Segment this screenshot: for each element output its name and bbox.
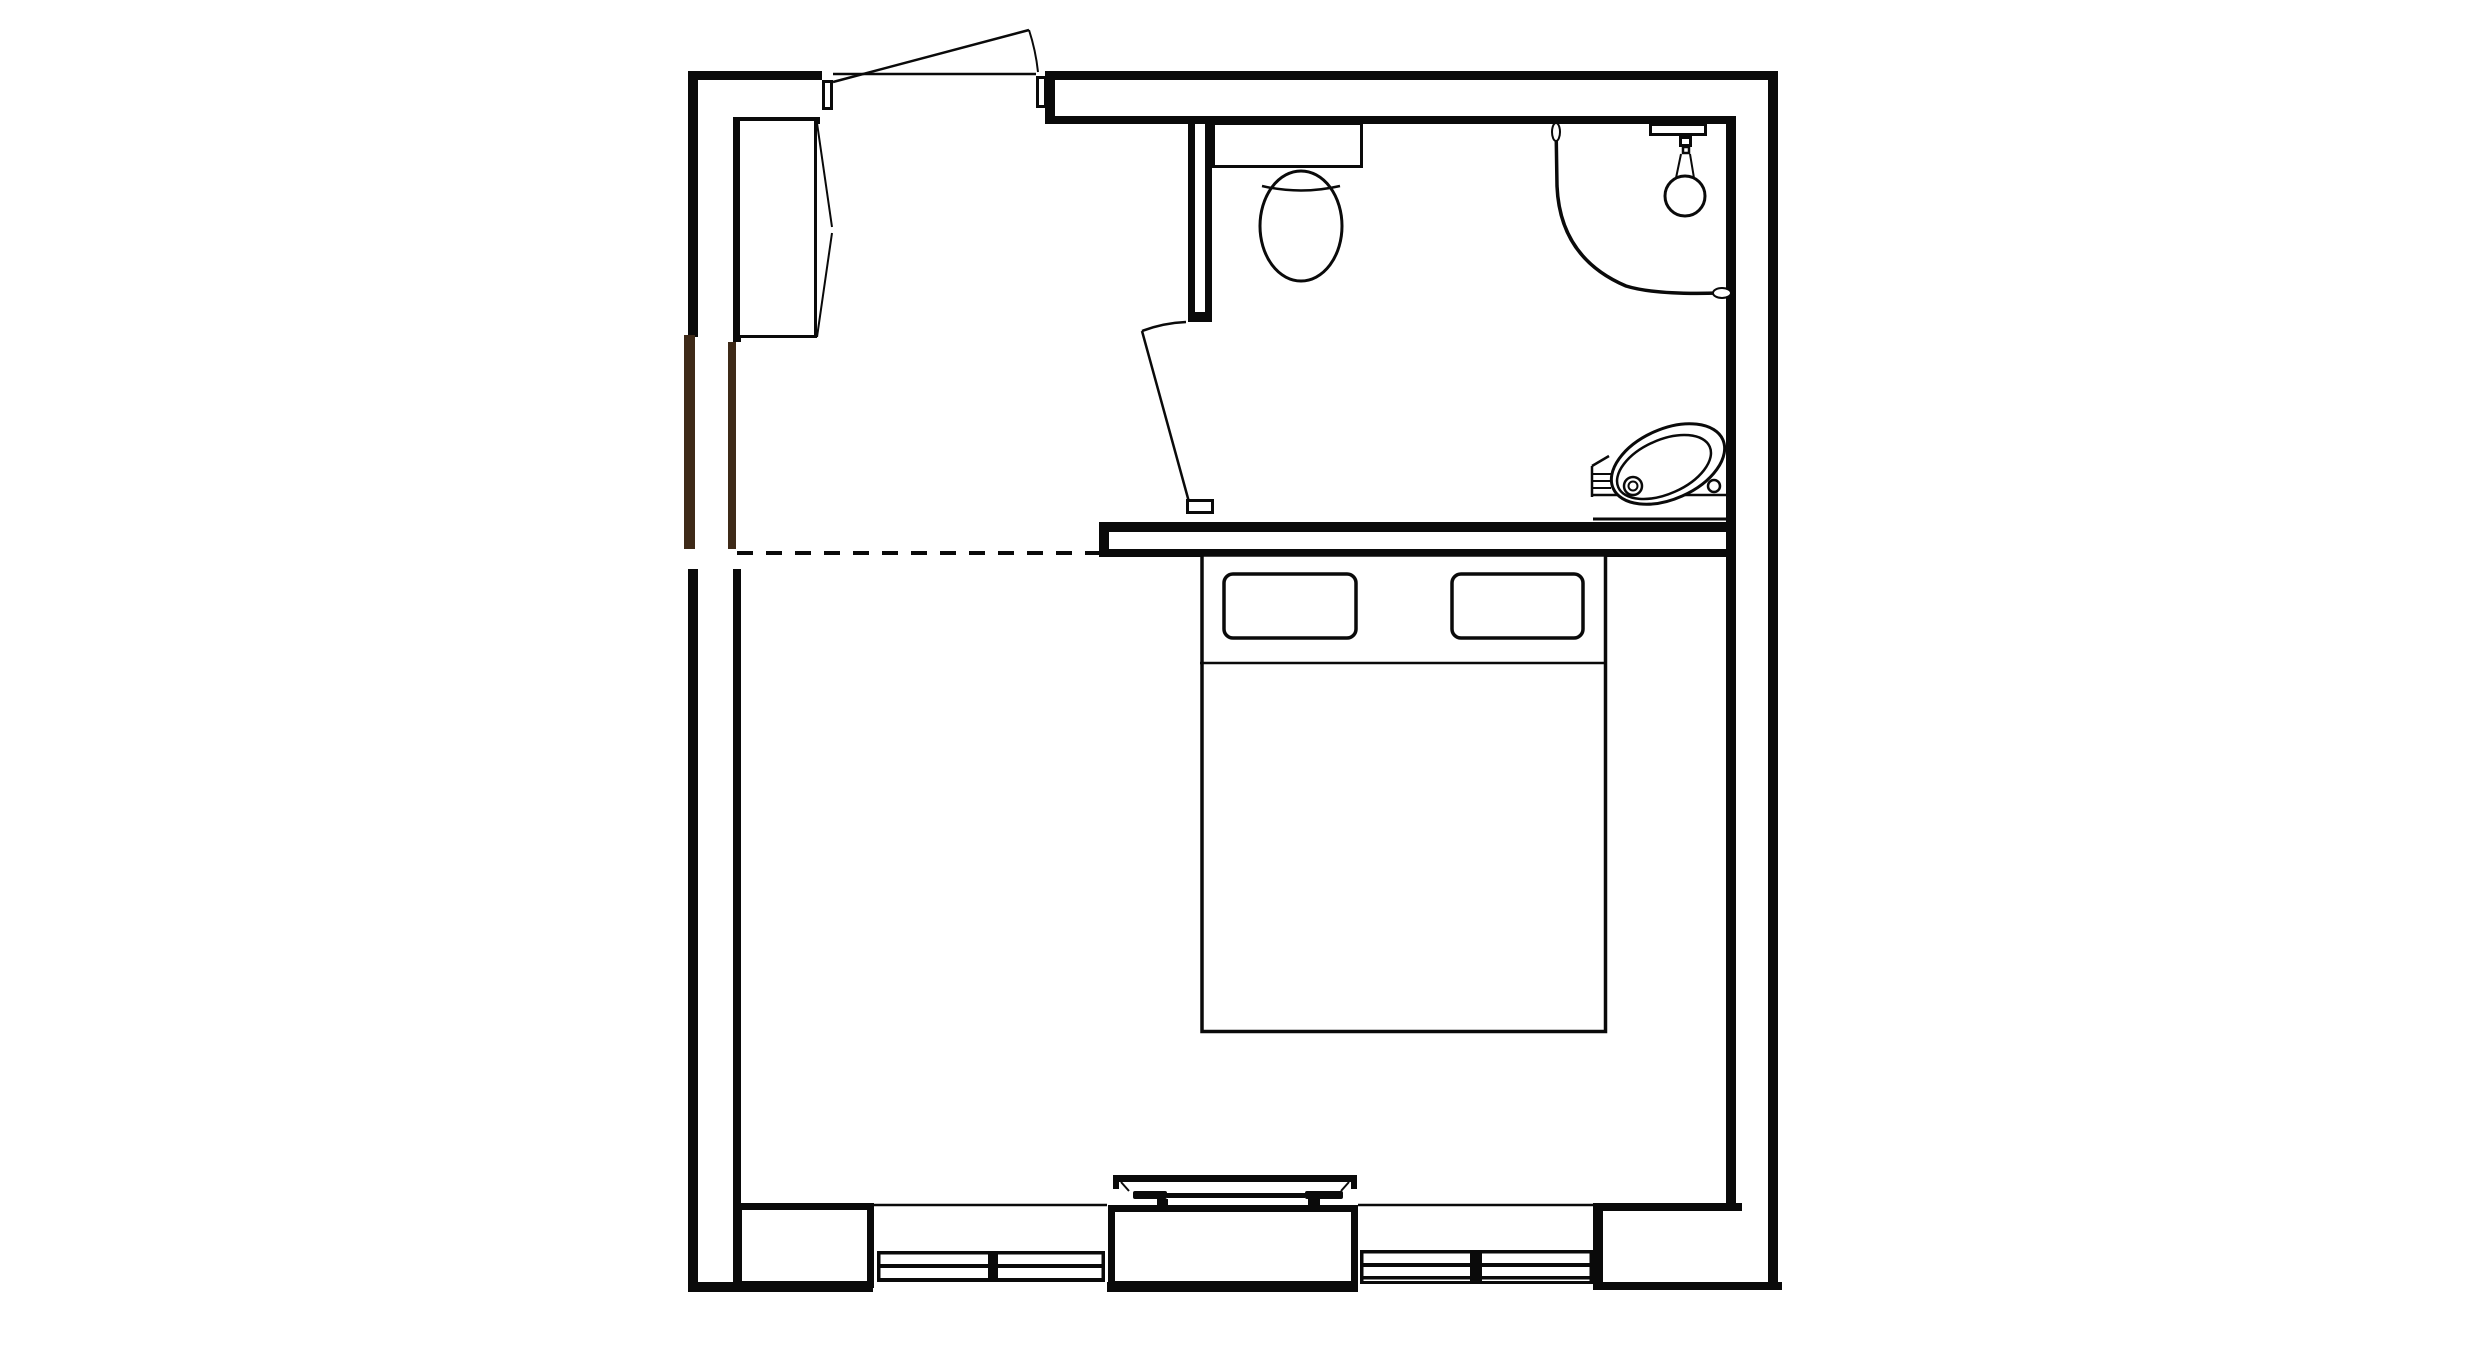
window-right-mullion: [1470, 1250, 1482, 1284]
sink-faucet: [1708, 480, 1720, 492]
window-left-cap-right: [1102, 1251, 1106, 1282]
shower-bracket-tick-1: [1653, 117, 1660, 123]
wall-left-outer-wood: [684, 335, 695, 549]
floor-plan-canvas: [0, 0, 2480, 1365]
shower-bracket: [1651, 125, 1706, 135]
bench-rail-right: [1305, 1191, 1343, 1199]
window-right-cap-left: [1360, 1250, 1364, 1284]
bottom-wall-pier-left: [739, 1207, 871, 1285]
closet-door-upper-line: [817, 123, 832, 227]
bathroom-door-jamb: [1188, 501, 1213, 513]
bench-side-left-line: [1121, 1182, 1129, 1191]
wall-left-outer-upper: [688, 71, 698, 337]
bench-top-bar: [1113, 1175, 1357, 1182]
bench-rail-left: [1133, 1191, 1167, 1199]
wall-bottom-corner-top-edge: [1593, 1203, 1742, 1211]
bench-top-bar-end-left: [1113, 1175, 1119, 1189]
shower-rod-finial-top: [1552, 123, 1560, 141]
wall-right-outer: [1768, 71, 1778, 1290]
bench-top-bar-end-right: [1351, 1175, 1357, 1189]
entry-door-jamb-right: [1038, 78, 1046, 107]
wall-bottom-band-right: [1593, 1282, 1782, 1290]
bottom-wall-pier-center: [1112, 1209, 1355, 1285]
bench-side-right-line: [1341, 1182, 1349, 1191]
shower-bracket-tick-3: [1692, 117, 1698, 123]
bathroom-door-leaf: [1142, 331, 1189, 502]
window-left-mullion: [988, 1251, 998, 1282]
sink-ledge-bevel: [1592, 456, 1609, 466]
entry-door-swing-arc: [1029, 30, 1038, 72]
wall-right-inner: [1726, 116, 1736, 1205]
sink-drain-outer: [1624, 477, 1642, 495]
wall-left-inner-wood: [728, 342, 736, 549]
wall-left-inner-lower: [733, 569, 741, 1288]
floor-plan-page: [0, 0, 2480, 1365]
wall-bottom-corner-left-edge: [1593, 1205, 1603, 1290]
shower-bracket-tick-2: [1665, 117, 1672, 123]
bench-foot-left: [1157, 1199, 1168, 1206]
bathroom-partition-cap: [1188, 312, 1212, 322]
toilet-tank: [1214, 124, 1362, 167]
shower-arm-lower: [1683, 147, 1689, 153]
closet-door-lower-line: [817, 233, 832, 337]
wall-top-outer-left: [688, 71, 822, 80]
bench-rail-center: [1167, 1193, 1305, 1198]
wall-left-outer-lower: [688, 569, 698, 1292]
bench-foot-right: [1308, 1199, 1320, 1206]
bathroom-partition-east-line: [1205, 122, 1212, 312]
entry-door-jamb-left: [824, 82, 832, 109]
bed-pillow-right: [1452, 574, 1583, 638]
shower-neck-right-line: [1690, 154, 1694, 178]
bathroom-wall-end-cap: [1099, 522, 1109, 557]
wall-top-inner-right: [1045, 116, 1736, 124]
closet-body: [739, 120, 816, 337]
window-left-cap-left: [877, 1251, 881, 1282]
shower-neck-left-line: [1676, 154, 1681, 178]
window-right-cap-right: [1590, 1250, 1594, 1284]
sink-basin-outer: [1599, 408, 1737, 521]
bathroom-wall-top-line: [1099, 522, 1736, 532]
wall-top-outer-right: [1045, 71, 1778, 80]
shower-arm-upper: [1681, 138, 1691, 146]
shower-head: [1665, 176, 1705, 216]
bed-pillow-left: [1224, 574, 1356, 638]
shower-rod-finial-right: [1713, 288, 1731, 298]
bathroom-partition-west-line: [1188, 122, 1195, 312]
bathroom-door-top-edge: [1142, 322, 1186, 331]
